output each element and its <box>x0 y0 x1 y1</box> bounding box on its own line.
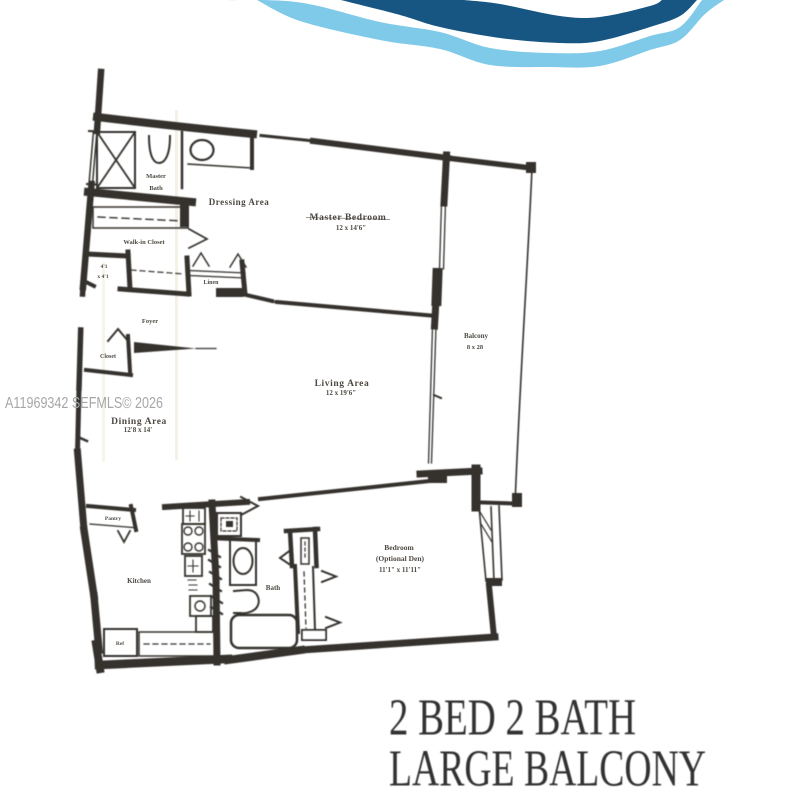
svg-text:2 BED 2 BATH: 2 BED 2 BATH <box>389 690 636 747</box>
svg-text:Bath: Bath <box>266 584 281 592</box>
svg-text:Bath: Bath <box>149 185 163 192</box>
svg-text:Master: Master <box>146 173 166 180</box>
svg-text:Kitchen: Kitchen <box>127 577 151 585</box>
svg-text:Dressing Area: Dressing Area <box>209 197 269 207</box>
svg-text:Living Area: Living Area <box>315 379 370 389</box>
svg-text:x 4'1: x 4'1 <box>97 274 108 280</box>
svg-text:12 x 14'6": 12 x 14'6" <box>336 224 366 232</box>
svg-text:Pantry: Pantry <box>105 516 121 522</box>
svg-text:12 x 19'6": 12 x 19'6" <box>326 389 356 397</box>
svg-text:(Optional Den): (Optional Den) <box>376 554 425 563</box>
svg-text:Balcony: Balcony <box>464 332 489 340</box>
svg-text:Closet: Closet <box>100 354 116 360</box>
svg-text:Ref: Ref <box>116 641 124 647</box>
svg-text:Foyer: Foyer <box>142 318 158 325</box>
svg-text:Bedroom: Bedroom <box>384 543 414 552</box>
svg-text:A11969342 SEFMLS© 2026: A11969342 SEFMLS© 2026 <box>5 395 163 412</box>
svg-text:11'1" x 11'11": 11'1" x 11'11" <box>379 566 421 574</box>
svg-text:12'8 x 14': 12'8 x 14' <box>124 426 152 434</box>
svg-text:4'1: 4'1 <box>100 264 107 270</box>
svg-text:LARGE BALCONY: LARGE BALCONY <box>389 741 706 798</box>
svg-text:Linen: Linen <box>203 280 219 286</box>
svg-text:Walk-in Closet: Walk-in Closet <box>123 239 165 246</box>
svg-text:8 x 28: 8 x 28 <box>467 344 484 351</box>
